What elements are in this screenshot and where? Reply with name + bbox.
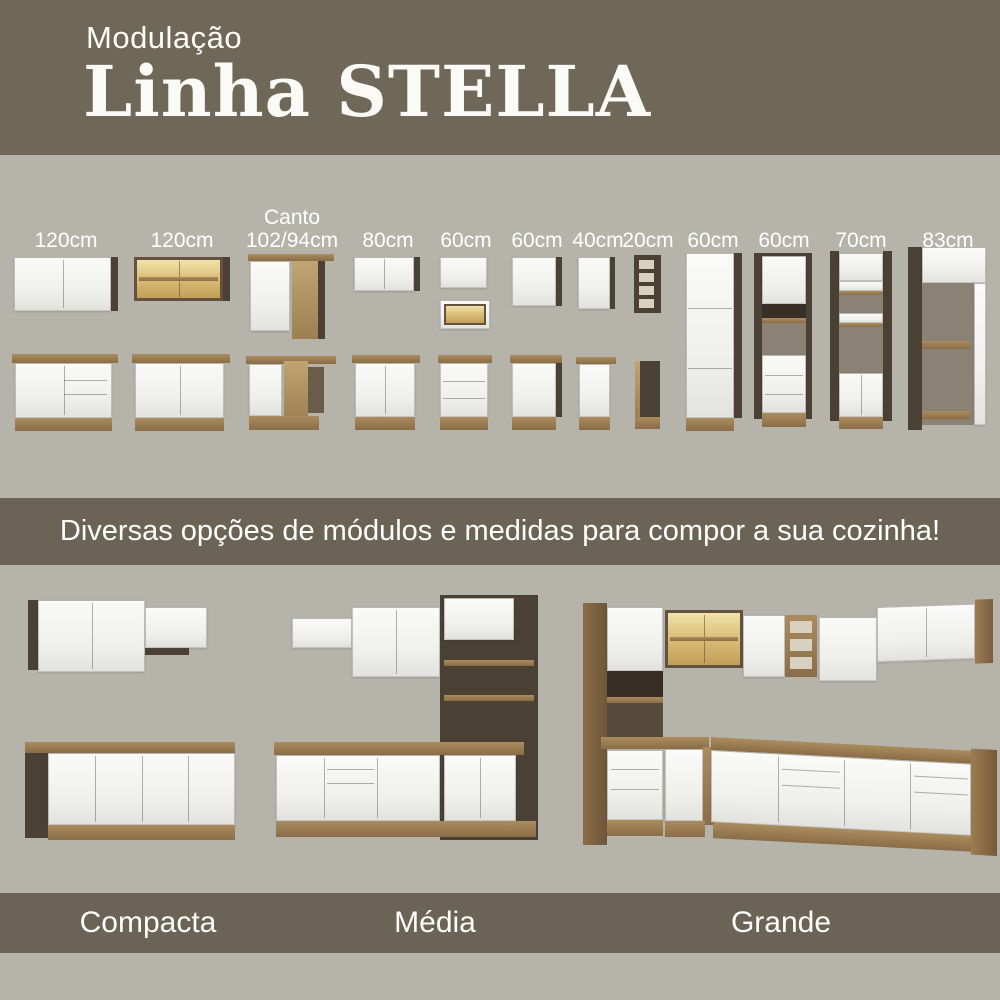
base-cabinet-graphic	[444, 755, 516, 821]
drawer-base-graphic	[440, 363, 488, 417]
wall-cabinet-graphic	[354, 257, 414, 291]
promo-image: Modulação Linha STELLA 120cm 120cm	[0, 0, 1000, 1000]
base-cabinet-run-graphic	[711, 737, 997, 872]
tall-open-shelf-graphic	[830, 251, 839, 421]
module-2-120cm-glass: 120cm	[132, 155, 232, 498]
banner-band: Diversas opções de módulos e medidas par…	[0, 498, 1000, 565]
module-10-60cm-tower: 60cm	[754, 155, 814, 498]
wall-cabinet-graphic	[352, 607, 440, 677]
module-3-canto: Canto 102/94cm	[246, 155, 338, 498]
base-cabinet-graphic	[512, 363, 556, 417]
base-cabinet-graphic	[48, 753, 235, 825]
modules-section: 120cm 120cm Canto	[0, 155, 1000, 498]
tall-pantry-graphic	[607, 607, 663, 671]
module-11-70cm: 70cm	[830, 155, 892, 498]
wall-cabinet-graphic	[743, 615, 785, 677]
wall-cabinet-graphic	[38, 600, 145, 672]
glass-wall-cabinet-graphic	[665, 610, 743, 668]
kitchen-grande-graphic	[575, 565, 997, 893]
module-1-120cm: 120cm	[12, 155, 120, 498]
kitchen-compacta-graphic	[20, 565, 235, 893]
wall-cabinet-graphic	[14, 257, 111, 311]
tall-pantry-graphic	[686, 253, 734, 418]
header-band: Modulação Linha STELLA	[0, 0, 1000, 155]
wall-cabinet-graphic	[292, 618, 352, 648]
module-4-80cm: 80cm	[352, 155, 424, 498]
corner-wall-cabinet-graphic	[250, 261, 290, 331]
base-cabinet-graphic	[355, 363, 415, 417]
base-cabinet-graphic	[276, 755, 440, 821]
wall-cabinet-graphic	[819, 617, 877, 681]
wall-cabinet-graphic	[145, 607, 207, 648]
wall-cabinet-graphic	[578, 257, 610, 309]
wall-cabinet-graphic	[512, 257, 556, 306]
tall-open-frame-graphic	[908, 247, 922, 430]
base-cabinet-graphic	[135, 363, 224, 418]
wall-cabinet-run-graphic	[877, 603, 991, 669]
brand-title: Linha STELLA	[83, 50, 651, 133]
module-5-60cm: 60cm	[438, 155, 494, 498]
base-cabinet-graphic	[15, 363, 112, 418]
corner-base-cabinet-graphic	[249, 364, 282, 416]
module-size-label: 83cm	[888, 205, 1000, 252]
kitchen-name-label: Média	[335, 893, 535, 953]
banner-text: Diversas opções de módulos e medidas par…	[0, 498, 1000, 565]
kitchen-media-graphic	[268, 565, 568, 893]
base-cabinet-graphic	[665, 749, 703, 821]
module-12-83cm: 83cm	[908, 155, 988, 498]
wall-cabinet-graphic	[440, 257, 487, 288]
kitchen-name-label: Compacta	[48, 893, 248, 953]
glass-wall-cabinet-graphic	[134, 257, 223, 301]
footer-band: Compacta Média Grande	[0, 893, 1000, 953]
module-8-20cm: 20cm	[630, 155, 666, 498]
base-cabinet-graphic	[579, 364, 610, 417]
kitchen-name-label: Grande	[681, 893, 881, 953]
kitchens-section	[0, 565, 1000, 893]
